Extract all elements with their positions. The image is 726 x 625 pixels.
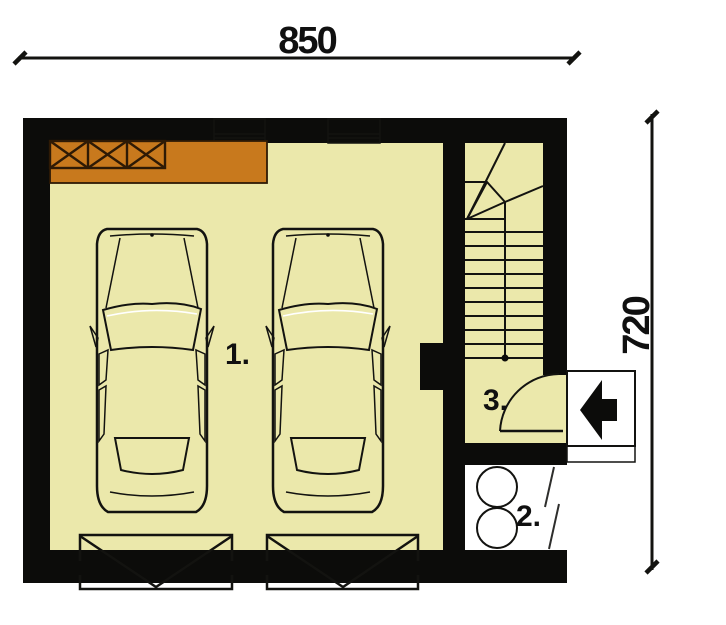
- door-jamb: [262, 561, 269, 575]
- entrance: [567, 371, 635, 462]
- doorway-floor: [543, 375, 567, 443]
- wall-left: [23, 118, 50, 583]
- dimension-width-value: 850: [278, 20, 336, 62]
- room-1-label: 1.: [225, 338, 250, 371]
- wall-garage-stair-divider: [443, 143, 465, 550]
- workbench: [50, 141, 267, 183]
- room-2-label: 2.: [516, 500, 541, 533]
- entry-arrow-icon: [580, 380, 617, 440]
- entrance-step: [567, 446, 635, 462]
- floor-plan-page: 1. 2. 3. 850 720: [0, 0, 726, 625]
- floor-plan-svg: 1. 2. 3. 850 720: [0, 0, 726, 625]
- door-jamb: [75, 561, 82, 575]
- dimension-right: 720: [616, 111, 658, 573]
- wall-right: [543, 118, 567, 375]
- dimension-height-value: 720: [616, 296, 658, 354]
- stair-walk-line-start-dot: [502, 355, 509, 362]
- room-3-label: 3.: [483, 384, 508, 417]
- door-jamb: [230, 561, 237, 575]
- dimension-top: 850: [14, 20, 580, 64]
- wall-entry-boiler-divider: [443, 443, 567, 465]
- wall-top: [23, 118, 567, 143]
- door-jamb: [416, 561, 423, 575]
- wall-pilaster: [420, 343, 445, 390]
